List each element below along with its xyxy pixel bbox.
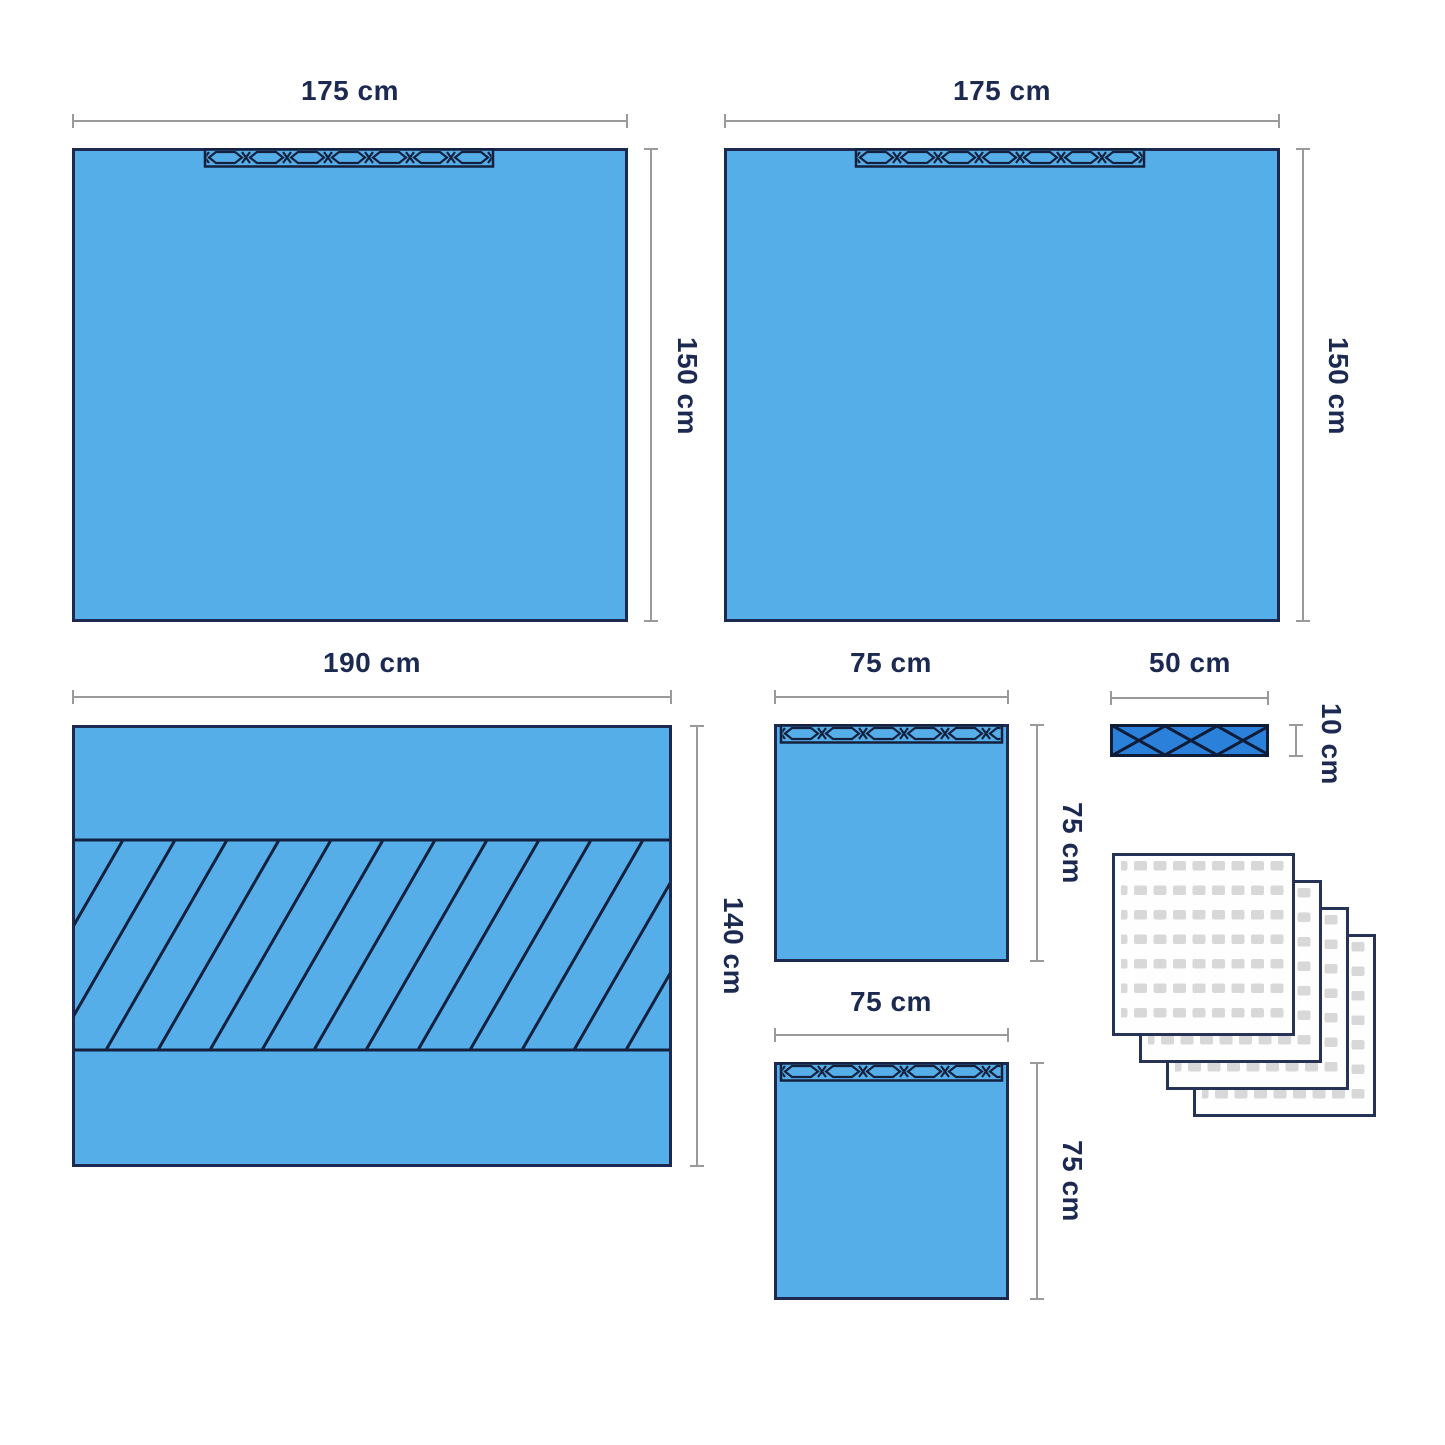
- towel-stack-graphic: [1112, 853, 1378, 1119]
- dimension-line-width-drape-top-left: [72, 120, 628, 122]
- drape-small-top: [774, 724, 1009, 962]
- drape-small-bottom: [774, 1062, 1009, 1300]
- dimension-label-width-drape-fenestrated: 190 cm: [323, 649, 421, 677]
- adhesive-tape-strip: [781, 1064, 1002, 1081]
- drape-small-bottom-graphic: [774, 1062, 1009, 1300]
- dimension-label-width-adhesive-strip: 50 cm: [1149, 649, 1231, 677]
- dimension-line-width-adhesive-strip: [1110, 697, 1269, 699]
- drape-body: [74, 150, 627, 621]
- dimension-label-height-adhesive-strip: 10 cm: [1317, 703, 1345, 785]
- drape-top-right: [724, 148, 1280, 622]
- dimension-label-height-drape-fenestrated: 140 cm: [719, 897, 747, 995]
- dimension-label-height-drape-small-bottom: 75 cm: [1058, 1140, 1086, 1222]
- dimension-line-height-drape-top-right: [1302, 148, 1304, 622]
- adhesive-strip-graphic: [1110, 724, 1269, 757]
- dimension-line-width-drape-small-bottom: [774, 1034, 1009, 1036]
- drape-top-left: [72, 148, 628, 622]
- surgical-drape-pack-diagram: 175 cm 150 cm 175 cm 150 cm 190 cm 140 c…: [0, 0, 1445, 1445]
- drape-fenestrated: [72, 725, 672, 1167]
- drape-top-right-graphic: [724, 148, 1280, 622]
- towel-sheet-1: [1114, 855, 1294, 1035]
- dimension-label-width-drape-small-bottom: 75 cm: [850, 988, 932, 1016]
- dimension-label-height-drape-top-left: 150 cm: [673, 337, 701, 435]
- dimension-line-width-drape-small-top: [774, 696, 1009, 698]
- dimension-line-width-drape-fenestrated: [72, 696, 672, 698]
- adhesive-tape-strip: [205, 150, 493, 167]
- drape-small-top-graphic: [774, 724, 1009, 962]
- dimension-label-width-drape-small-top: 75 cm: [850, 649, 932, 677]
- drape-top-left-graphic: [72, 148, 628, 622]
- drape-body: [776, 726, 1008, 961]
- drape-body: [726, 150, 1279, 621]
- dimension-label-width-drape-top-left: 175 cm: [301, 77, 399, 105]
- dimension-line-height-drape-top-left: [650, 148, 652, 622]
- dimension-line-height-adhesive-strip: [1295, 724, 1297, 757]
- dimension-label-height-drape-small-top: 75 cm: [1058, 802, 1086, 884]
- adhesive-tape-strip: [781, 726, 1002, 743]
- drape-body: [776, 1064, 1008, 1299]
- dimension-line-height-drape-small-top: [1036, 724, 1038, 962]
- dimension-line-width-drape-top-right: [724, 120, 1280, 122]
- drape-fenestrated-graphic: [72, 725, 672, 1167]
- dimension-line-height-drape-small-bottom: [1036, 1062, 1038, 1300]
- strip-lattice: [1113, 726, 1266, 755]
- dimension-label-height-drape-top-right: 150 cm: [1324, 337, 1352, 435]
- adhesive-strip: [1110, 724, 1269, 757]
- dimension-label-width-drape-top-right: 175 cm: [953, 77, 1051, 105]
- adhesive-tape-strip: [856, 150, 1144, 167]
- towel-stack: [1112, 853, 1378, 1119]
- dimension-line-height-drape-fenestrated: [696, 725, 698, 1167]
